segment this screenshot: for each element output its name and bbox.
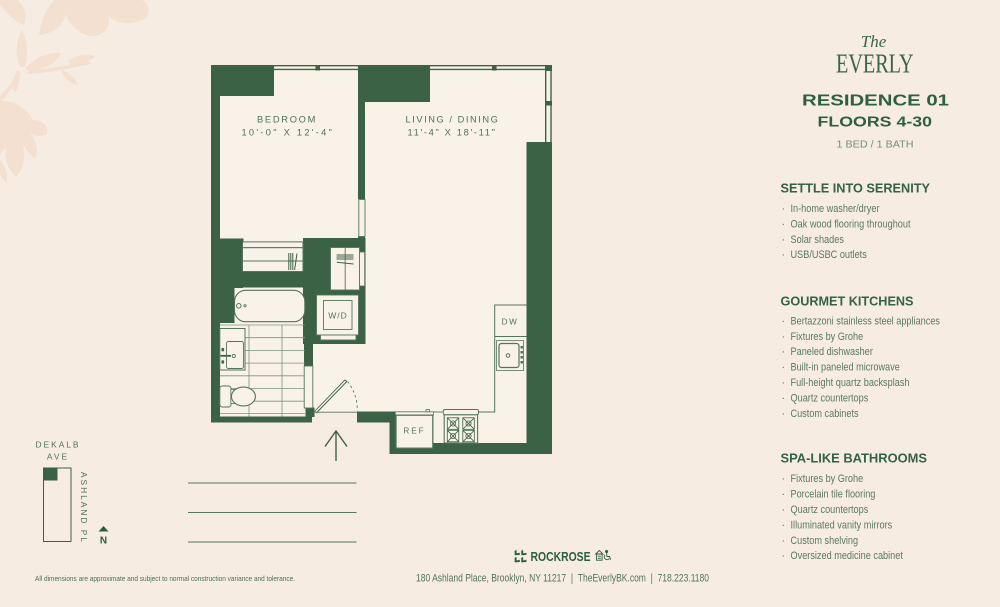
svg-text:·: · [782,234,786,246]
svg-text:·: · [782,346,786,358]
svg-text:SPA-LIKE BATHROOMS: SPA-LIKE BATHROOMS [781,451,928,466]
svg-text:DW: DW [502,318,519,327]
svg-text:·: · [782,504,786,516]
svg-text:·: · [782,489,786,501]
svg-text:Quartz countertops: Quartz countertops [791,392,869,404]
svg-text:Oversized medicine cabinet: Oversized medicine cabinet [791,550,903,562]
svg-text:FLOORS 4-30: FLOORS 4-30 [818,114,933,131]
svg-text:·: · [782,408,786,420]
svg-text:In-home washer/dryer: In-home washer/dryer [791,203,880,215]
svg-text:USB/USBC outlets: USB/USBC outlets [791,249,868,261]
svg-text:·: · [782,377,786,389]
svg-text:SETTLE INTO SERENITY: SETTLE INTO SERENITY [781,181,931,196]
svg-text:Quartz countertops: Quartz countertops [791,504,869,516]
svg-text:Custom shelving: Custom shelving [791,535,859,547]
svg-text:EVERLY: EVERLY [836,49,914,79]
svg-text:Illuminated vanity mirrors: Illuminated vanity mirrors [791,519,893,531]
svg-text:10'-0" X 12'-4": 10'-0" X 12'-4" [242,128,334,138]
svg-text:Fixtures by Grohe: Fixtures by Grohe [791,473,864,485]
svg-text:Porcelain tile flooring: Porcelain tile flooring [791,489,876,501]
svg-text:·: · [782,249,786,261]
svg-text:N: N [100,536,107,547]
svg-text:Oak wood flooring throughout: Oak wood flooring throughout [791,218,911,230]
svg-text:LIVING / DINING: LIVING / DINING [406,115,501,125]
svg-text:1 BED / 1 BATH: 1 BED / 1 BATH [837,139,914,151]
svg-text:Paneled dishwasher: Paneled dishwasher [791,346,874,358]
svg-text:Solar shades: Solar shades [791,234,845,246]
svg-text:180 Ashland Place, Brooklyn, N: 180 Ashland Place, Brooklyn, NY 11217 | … [416,573,709,585]
svg-text:Custom cabinets: Custom cabinets [791,408,860,420]
svg-text:·: · [782,473,786,485]
svg-text:Full-height quartz backsplash: Full-height quartz backsplash [791,377,910,389]
svg-text:·: · [782,331,786,343]
svg-text:ROCKROSE: ROCKROSE [531,549,591,564]
svg-text:All dimensions are approximate: All dimensions are approximate and subje… [35,574,295,583]
svg-text:·: · [782,362,786,374]
svg-text:ASHLAND PL: ASHLAND PL [79,472,89,544]
svg-text:Built-in paneled microwave: Built-in paneled microwave [791,362,900,374]
svg-text:REF: REF [403,427,425,436]
svg-text:Bertazzoni stainless steel app: Bertazzoni stainless steel appliances [791,315,941,327]
svg-text:RESIDENCE 01: RESIDENCE 01 [802,93,949,110]
svg-text:·: · [782,392,786,404]
svg-text:·: · [782,550,786,562]
svg-text:GOURMET KITCHENS: GOURMET KITCHENS [781,294,914,309]
svg-text:DEKALB: DEKALB [35,440,80,450]
svg-text:AVE: AVE [47,452,69,462]
svg-text:·: · [782,203,786,215]
svg-text:W/D: W/D [328,311,348,321]
svg-text:·: · [782,519,786,531]
svg-text:Fixtures by Grohe: Fixtures by Grohe [791,331,864,343]
svg-text:·: · [782,315,786,327]
svg-text:BEDROOM: BEDROOM [257,115,318,125]
svg-text:11'-4" X 18'-11": 11'-4" X 18'-11" [408,128,497,138]
svg-text:·: · [782,218,786,230]
svg-text:·: · [782,535,786,547]
